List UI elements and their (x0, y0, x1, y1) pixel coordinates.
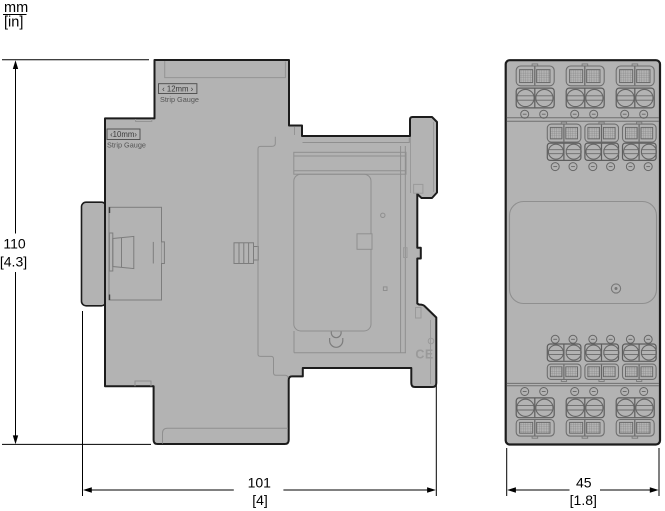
svg-text:CE: CE (415, 348, 433, 362)
svg-text:110: 110 (3, 236, 26, 252)
svg-text:‹10mm›: ‹10mm› (110, 130, 137, 139)
svg-text:[in]: [in] (4, 15, 23, 31)
svg-text:[4.3]: [4.3] (0, 254, 27, 270)
svg-text:‹ 12mm ›: ‹ 12mm › (162, 85, 194, 94)
svg-text:[4]: [4] (252, 492, 268, 508)
svg-text:Strip Gauge: Strip Gauge (160, 95, 199, 104)
svg-text:[1.8]: [1.8] (570, 492, 597, 508)
svg-text:101: 101 (248, 475, 272, 491)
svg-text:45: 45 (576, 475, 592, 491)
svg-text:Strip Gauge: Strip Gauge (107, 141, 146, 150)
